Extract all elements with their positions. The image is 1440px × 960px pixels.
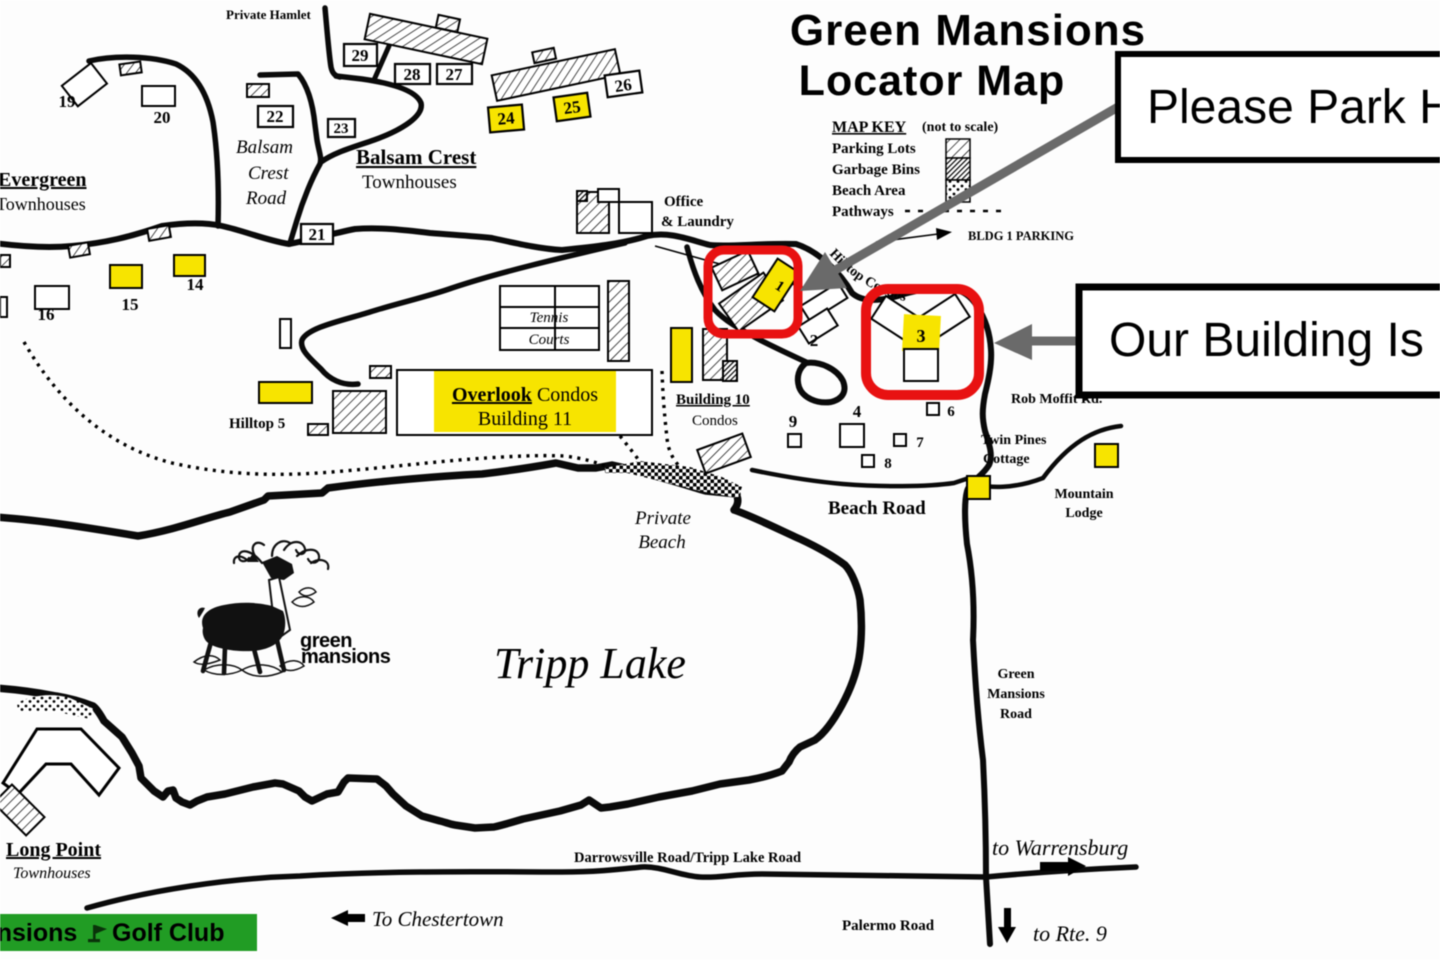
svg-text:Palermo Road: Palermo Road <box>842 918 935 934</box>
svg-text:Parking Lots: Parking Lots <box>832 141 916 157</box>
svg-text:16: 16 <box>38 305 55 324</box>
svg-text:Building 10: Building 10 <box>676 392 750 408</box>
svg-text:Mountain: Mountain <box>1054 487 1113 502</box>
svg-text:Townhouses: Townhouses <box>0 194 86 214</box>
svg-text:21: 21 <box>309 225 326 244</box>
svg-text:Long Point: Long Point <box>6 839 101 861</box>
svg-text:Road: Road <box>245 188 287 209</box>
svg-text:Evergreen: Evergreen <box>0 169 87 191</box>
svg-text:Private Hamlet: Private Hamlet <box>226 7 311 22</box>
svg-text:to Warrensburg: to Warrensburg <box>992 835 1128 860</box>
svg-text:Darrowsville Road/Tripp Lake R: Darrowsville Road/Tripp Lake Road <box>574 850 801 866</box>
svg-text:Tripp Lake: Tripp Lake <box>494 639 686 688</box>
svg-text:20: 20 <box>154 108 171 127</box>
svg-text:22: 22 <box>267 107 284 126</box>
svg-text:Golf Club: Golf Club <box>112 919 224 947</box>
svg-text:Our Building Is H: Our Building Is H <box>1109 314 1440 367</box>
svg-text:Beach: Beach <box>638 532 685 553</box>
svg-text:Mansions: Mansions <box>987 687 1045 702</box>
svg-text:Lodge: Lodge <box>1065 506 1102 521</box>
svg-text:3: 3 <box>917 326 926 346</box>
svg-text:19: 19 <box>59 92 76 111</box>
svg-text:15: 15 <box>122 295 139 314</box>
svg-text:Overlook Condos: Overlook Condos <box>452 384 598 406</box>
svg-text:24: 24 <box>497 108 516 128</box>
svg-text:Balsam: Balsam <box>236 137 293 158</box>
svg-text:Crest: Crest <box>248 163 289 184</box>
svg-text:Locator Map: Locator Map <box>799 57 1066 105</box>
svg-text:Courts: Courts <box>529 332 570 348</box>
svg-text:14: 14 <box>187 275 205 294</box>
svg-text:& Laundry: & Laundry <box>661 214 734 230</box>
svg-text:to Rte. 9: to Rte. 9 <box>1033 921 1107 946</box>
svg-text:Private: Private <box>634 508 691 529</box>
svg-text:2: 2 <box>810 331 819 350</box>
svg-text:23: 23 <box>334 121 349 137</box>
svg-text:Balsam Crest: Balsam Crest <box>356 145 476 169</box>
svg-text:To Chestertown: To Chestertown <box>372 907 504 931</box>
svg-text:Mansions: Mansions <box>0 919 77 947</box>
svg-text:Pathways: Pathways <box>832 204 894 220</box>
svg-text:9: 9 <box>789 412 798 431</box>
svg-text:Road: Road <box>1000 707 1032 722</box>
svg-text:Garbage Bins: Garbage Bins <box>832 162 920 178</box>
svg-text:Please Park H: Please Park H <box>1147 81 1440 134</box>
svg-text:Green: Green <box>997 667 1034 682</box>
svg-text:7: 7 <box>916 435 924 451</box>
svg-text:27: 27 <box>446 65 464 84</box>
svg-text:Condos: Condos <box>692 413 738 429</box>
svg-text:Beach Road: Beach Road <box>828 498 926 519</box>
svg-text:Cottage: Cottage <box>983 452 1030 467</box>
svg-text:Green Mansions: Green Mansions <box>790 6 1146 55</box>
svg-text:Hilltop 5: Hilltop 5 <box>229 416 285 432</box>
svg-text:Office: Office <box>664 194 703 210</box>
svg-text:Beach Area: Beach Area <box>832 183 906 199</box>
svg-text:Townhouses: Townhouses <box>13 865 91 882</box>
svg-text:Twin Pines: Twin Pines <box>981 433 1047 448</box>
svg-text:(not to scale): (not to scale) <box>922 120 999 135</box>
svg-text:Building 11: Building 11 <box>478 408 572 430</box>
svg-text:4: 4 <box>853 402 862 421</box>
svg-text:26: 26 <box>613 75 632 96</box>
svg-text:29: 29 <box>352 46 369 65</box>
svg-text:8: 8 <box>884 456 892 472</box>
svg-text:MAP KEY: MAP KEY <box>832 119 907 136</box>
svg-text:Tennis: Tennis <box>530 310 569 326</box>
svg-text:25: 25 <box>562 97 581 118</box>
svg-text:BLDG 1 PARKING: BLDG 1 PARKING <box>968 229 1074 243</box>
svg-text:6: 6 <box>947 404 955 420</box>
svg-text:mansions: mansions <box>301 646 391 668</box>
svg-text:Townhouses: Townhouses <box>362 172 457 193</box>
svg-text:28: 28 <box>404 65 421 84</box>
